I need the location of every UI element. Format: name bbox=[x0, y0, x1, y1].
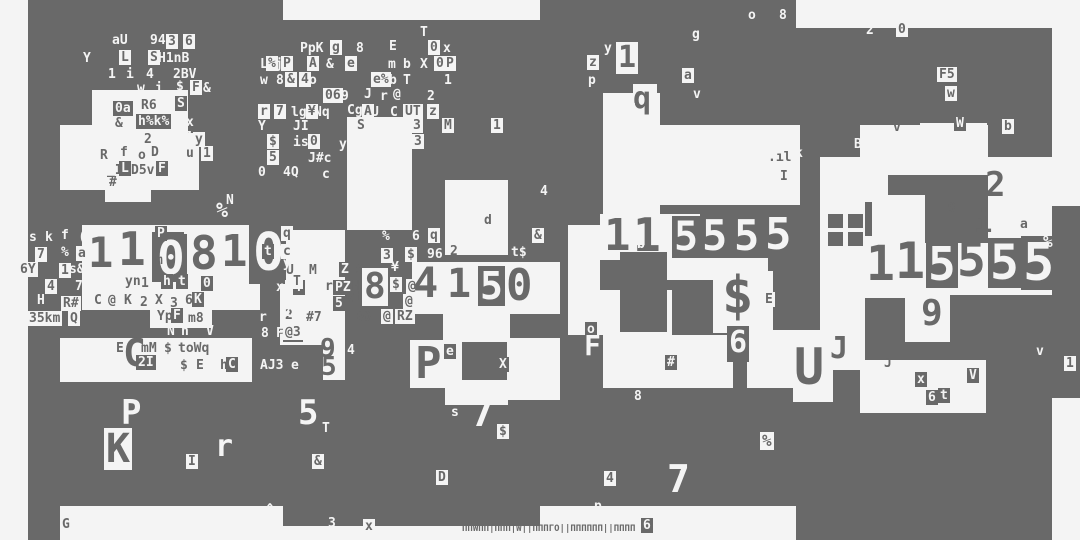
glyph: M bbox=[309, 264, 317, 277]
glyph: G bbox=[347, 152, 355, 165]
white-blob bbox=[507, 338, 560, 400]
glyph: 3 bbox=[381, 248, 393, 263]
white-blob bbox=[283, 0, 540, 20]
glyph: $ bbox=[180, 359, 188, 372]
glyph: a bbox=[76, 246, 88, 261]
glyph: x bbox=[186, 116, 194, 129]
glyph: 5 bbox=[926, 240, 958, 288]
glyph: ΠΠWΠΠ|ΠΠΠ|W||ΠΠΠΓΟ||ΠΠΠΠΠΠ||ΠΠΠΠ bbox=[462, 525, 635, 534]
glyph: 0a bbox=[113, 101, 133, 116]
gray-block bbox=[620, 252, 667, 332]
glyph: F bbox=[584, 332, 601, 360]
glyph: r bbox=[259, 311, 267, 324]
glyph: & bbox=[312, 454, 324, 469]
glyph: h%k% bbox=[136, 114, 171, 129]
glyph: 0 bbox=[201, 276, 213, 291]
glyph: d bbox=[484, 214, 492, 227]
glyph: 7 bbox=[75, 280, 83, 293]
glyph: 1 bbox=[201, 146, 213, 161]
glyph: K bbox=[124, 294, 132, 307]
glyph: P bbox=[444, 56, 456, 71]
glyph: T bbox=[322, 422, 330, 435]
glyph: W bbox=[954, 116, 966, 131]
glyph: f bbox=[61, 229, 69, 242]
glyph: 3 bbox=[166, 34, 178, 49]
glyph: 06 bbox=[323, 88, 343, 103]
glyph: F5 bbox=[937, 67, 957, 82]
glyph: F bbox=[156, 161, 168, 176]
glyph: @ bbox=[381, 309, 393, 324]
glyph: E bbox=[389, 40, 397, 53]
glyph: 6 bbox=[729, 328, 747, 358]
glyph: 1 bbox=[895, 236, 925, 286]
glyph: % bbox=[216, 200, 228, 220]
glyph: 5 bbox=[763, 212, 794, 258]
glyph: toWq bbox=[178, 342, 209, 355]
glyph: X bbox=[155, 294, 163, 307]
glyph: $ bbox=[390, 277, 402, 292]
glyph: 4 bbox=[540, 185, 548, 198]
glyph: 8 bbox=[362, 268, 388, 306]
glyph: 7 bbox=[184, 131, 192, 144]
glyph: $ bbox=[405, 247, 417, 262]
glyph: 96 bbox=[427, 248, 443, 261]
glyph: v bbox=[1036, 345, 1044, 358]
glyph: % bbox=[382, 230, 390, 243]
glyph: r bbox=[325, 280, 333, 293]
glyph: mM bbox=[141, 342, 157, 355]
glyph: # bbox=[109, 176, 117, 189]
glyph: f bbox=[120, 146, 128, 159]
glyph: 9 bbox=[921, 296, 943, 332]
glyph: 8 bbox=[276, 74, 284, 87]
glyph: D bbox=[151, 146, 159, 159]
glyph: 5 bbox=[988, 238, 1021, 288]
glyph: f bbox=[12, 231, 20, 244]
glyph: 4 bbox=[347, 344, 355, 357]
glyph: Y bbox=[83, 52, 91, 65]
white-blob bbox=[660, 125, 800, 205]
glyph: c bbox=[714, 306, 728, 330]
glyph: & bbox=[326, 58, 334, 71]
glyph: $ bbox=[164, 342, 172, 355]
glyph: V bbox=[206, 325, 214, 338]
glyph: 6 bbox=[926, 390, 938, 405]
glyph: J bbox=[830, 334, 848, 364]
glyph: C bbox=[94, 294, 102, 307]
glyph: w bbox=[945, 86, 957, 101]
glyph: t bbox=[938, 388, 950, 403]
glyph: t bbox=[176, 274, 188, 289]
glyph: 2 bbox=[140, 296, 148, 309]
glyph: s bbox=[451, 406, 459, 419]
glyph: s bbox=[29, 231, 37, 244]
glyph: J bbox=[884, 357, 892, 370]
glyph: y bbox=[193, 132, 205, 147]
glyph: 1 bbox=[444, 74, 452, 87]
white-blob bbox=[540, 506, 796, 540]
glyph: P bbox=[121, 396, 141, 430]
glyph: 6 bbox=[183, 34, 195, 49]
glyph: @ bbox=[393, 88, 401, 101]
glyph: b bbox=[403, 58, 411, 71]
glyph: J bbox=[364, 88, 372, 101]
glyph: # bbox=[665, 355, 677, 370]
glyph: R6 bbox=[141, 99, 157, 112]
glyph: 1 bbox=[604, 214, 631, 258]
glyph: 1 bbox=[108, 68, 116, 81]
glyph: 0 bbox=[896, 22, 908, 37]
glyph: 5 bbox=[267, 150, 279, 165]
glyph: 4Q bbox=[283, 166, 299, 179]
glyph: 5 bbox=[478, 266, 505, 306]
glyph: p bbox=[594, 500, 602, 513]
white-blob bbox=[443, 314, 510, 342]
glyph: 1 bbox=[118, 226, 146, 272]
glyph: z bbox=[587, 55, 599, 70]
glyph: I bbox=[186, 454, 198, 469]
glyph: q bbox=[281, 226, 293, 241]
glyph: t bbox=[262, 244, 274, 259]
glyph: x bbox=[363, 519, 375, 534]
glyph: yv bbox=[339, 138, 355, 151]
glyph: 4 bbox=[604, 471, 616, 486]
glyph: M bbox=[442, 118, 454, 133]
glyph: r bbox=[380, 90, 388, 103]
glyph: 1 bbox=[447, 264, 471, 304]
glyph: 8 bbox=[261, 327, 269, 340]
glyph: R bbox=[100, 149, 108, 162]
glyph: @3 bbox=[283, 325, 303, 340]
gray-block bbox=[848, 232, 863, 246]
glyph: b bbox=[389, 74, 397, 87]
gray-block bbox=[848, 214, 863, 228]
glyph: 5 bbox=[732, 214, 761, 258]
glyph: L bbox=[119, 161, 131, 176]
glyph: t$ bbox=[511, 246, 527, 259]
glyph: r bbox=[258, 104, 270, 119]
glyph: V bbox=[967, 368, 979, 383]
glyph: PpK bbox=[300, 42, 323, 55]
glyph: x bbox=[915, 372, 927, 387]
glyph: m bbox=[155, 254, 163, 267]
glyph: Z bbox=[339, 262, 351, 277]
glyph: g bbox=[330, 40, 342, 55]
glyph: b bbox=[637, 238, 645, 251]
glyph: 1 bbox=[141, 277, 149, 290]
glyph: h bbox=[161, 274, 173, 289]
glyph: 2 bbox=[866, 24, 874, 37]
glyph: .ıl bbox=[768, 151, 791, 164]
glyph: UT bbox=[403, 104, 423, 119]
glyph: y bbox=[283, 257, 291, 270]
gray-block bbox=[828, 214, 843, 228]
glyph: E bbox=[196, 359, 204, 372]
glyph: L bbox=[119, 50, 131, 65]
glyph: S bbox=[175, 96, 187, 111]
glyph: 3 bbox=[411, 118, 423, 133]
glyph: 1 bbox=[88, 232, 113, 274]
glyph: 1 bbox=[1064, 356, 1076, 371]
glyph: 8 bbox=[356, 42, 364, 55]
glyph: 0 bbox=[258, 166, 266, 179]
glyph: % bbox=[760, 432, 774, 450]
glyph: 9 bbox=[948, 202, 956, 215]
glyph: BQ bbox=[355, 311, 371, 324]
white-blob bbox=[60, 506, 283, 540]
glyph: is bbox=[293, 136, 309, 149]
glyph: e bbox=[291, 359, 299, 372]
glyph: % bbox=[1043, 234, 1053, 250]
glyph: s& bbox=[69, 263, 85, 276]
glyph: i bbox=[155, 82, 163, 95]
glyph: T bbox=[420, 26, 428, 39]
glyph: @ bbox=[108, 294, 116, 307]
glyph: Cg bbox=[347, 104, 363, 117]
glyph: A bbox=[307, 56, 319, 71]
glyph: X bbox=[497, 357, 509, 372]
glyph: 7 bbox=[628, 103, 636, 116]
glyph: Q bbox=[68, 311, 80, 326]
glyph: Y bbox=[258, 120, 266, 133]
glyph: 7 bbox=[35, 247, 47, 262]
glyph: r bbox=[215, 432, 233, 462]
glyph: 7 bbox=[471, 394, 494, 432]
glyph: 6Y bbox=[18, 262, 38, 277]
glyph: X bbox=[420, 58, 428, 71]
glyph: n bbox=[181, 325, 189, 338]
glyph: 1 bbox=[221, 230, 248, 274]
glyph: 5 bbox=[672, 216, 700, 258]
glyph: 6 bbox=[412, 230, 420, 243]
glyph: 8 bbox=[779, 9, 787, 22]
glyph: 1 bbox=[866, 240, 895, 288]
glyph: B bbox=[854, 138, 862, 151]
glyph: D5v bbox=[131, 164, 154, 177]
glyph: e bbox=[345, 56, 357, 71]
glyph: U bbox=[794, 342, 824, 392]
glyph: . bbox=[677, 463, 685, 476]
glyph: 1 bbox=[616, 42, 638, 74]
glyph: ^ bbox=[266, 503, 274, 516]
glyph: 7 bbox=[274, 104, 286, 119]
glyph: P bbox=[415, 342, 442, 386]
glyph: T bbox=[291, 274, 303, 289]
glyph: dz bbox=[386, 122, 402, 135]
glyph: m8 bbox=[186, 311, 206, 326]
glyph: 2 bbox=[283, 306, 291, 319]
glyph: $ bbox=[497, 424, 509, 439]
glyph: Nq bbox=[314, 106, 330, 119]
glyph: k bbox=[795, 147, 803, 160]
ascii-art-canvas: aU9436YLSH1nB1i42BVwi$F&0aR6S&h%k%x27yRf… bbox=[0, 0, 1080, 540]
glyph: E bbox=[763, 292, 775, 307]
glyph: 9 bbox=[341, 90, 349, 103]
glyph: 1 bbox=[491, 118, 503, 133]
glyph: 0 bbox=[506, 264, 533, 308]
gray-block bbox=[828, 232, 843, 246]
glyph: K bbox=[192, 292, 204, 307]
glyph: N bbox=[167, 325, 175, 338]
glyph: a bbox=[682, 68, 694, 83]
glyph: AJ3 bbox=[260, 359, 283, 372]
glyph: b bbox=[1002, 119, 1014, 134]
glyph: g bbox=[692, 28, 700, 41]
glyph: o bbox=[748, 9, 756, 22]
glyph: H1nB bbox=[158, 52, 189, 65]
glyph: m bbox=[674, 260, 682, 273]
glyph: 4 bbox=[146, 68, 154, 81]
glyph: 5 bbox=[700, 214, 729, 258]
glyph: q bbox=[428, 228, 440, 243]
white-blob bbox=[796, 0, 1052, 28]
white-blob bbox=[1052, 0, 1080, 206]
glyph: yn bbox=[125, 275, 141, 288]
glyph: F bbox=[171, 308, 183, 323]
glyph: C bbox=[226, 357, 238, 372]
glyph: 5 bbox=[321, 354, 337, 380]
glyph: % bbox=[61, 246, 69, 259]
glyph: 5 bbox=[298, 396, 318, 430]
glyph: 2 bbox=[427, 90, 435, 103]
glyph: H bbox=[37, 294, 45, 307]
glyph: p bbox=[588, 74, 596, 87]
glyph: 35km bbox=[27, 311, 62, 326]
glyph: o bbox=[309, 74, 317, 87]
glyph: F bbox=[190, 80, 202, 95]
glyph: P bbox=[155, 226, 167, 241]
glyph: k bbox=[45, 231, 53, 244]
glyph: & bbox=[203, 82, 211, 95]
glyph: D bbox=[436, 470, 448, 485]
glyph: i bbox=[974, 208, 992, 238]
glyph: 4 bbox=[45, 279, 57, 294]
glyph: JI bbox=[293, 120, 309, 133]
glyph: o bbox=[138, 149, 146, 162]
glyph: C bbox=[390, 106, 398, 119]
glyph: u bbox=[184, 146, 196, 161]
glyph: 0 bbox=[428, 40, 440, 55]
glyph: v bbox=[893, 121, 901, 134]
glyph: lg bbox=[291, 106, 307, 119]
glyph: 2 bbox=[450, 245, 458, 258]
glyph: y bbox=[604, 42, 612, 55]
glyph: 5 bbox=[957, 236, 986, 284]
glyph: w bbox=[137, 82, 145, 95]
glyph: i bbox=[126, 68, 134, 81]
glyph: & bbox=[532, 228, 544, 243]
glyph: J#c bbox=[308, 152, 331, 165]
glyph: 2 bbox=[985, 168, 1005, 202]
glyph: e bbox=[444, 344, 456, 359]
glyph: e% bbox=[371, 72, 391, 87]
glyph: T bbox=[403, 74, 411, 87]
glyph: 5 bbox=[333, 296, 345, 311]
glyph: z bbox=[427, 104, 439, 119]
glyph: 2I bbox=[136, 355, 156, 370]
glyph: P bbox=[281, 56, 293, 71]
glyph: U bbox=[371, 106, 379, 119]
glyph: c bbox=[322, 168, 330, 181]
glyph: & bbox=[285, 72, 297, 87]
glyph: 94 bbox=[150, 34, 166, 47]
glyph: v bbox=[693, 88, 701, 101]
glyph: R# bbox=[61, 296, 81, 311]
white-blob bbox=[1052, 398, 1080, 540]
glyph: 8 bbox=[634, 390, 642, 403]
glyph: a bbox=[1020, 218, 1028, 231]
glyph: 7 bbox=[21, 278, 29, 291]
glyph: $ bbox=[267, 134, 279, 149]
glyph: S bbox=[355, 118, 367, 133]
white-blob bbox=[347, 117, 412, 230]
glyph: aU bbox=[112, 34, 128, 47]
glyph: & bbox=[115, 117, 123, 130]
glyph: $ bbox=[176, 80, 184, 93]
glyph: G bbox=[60, 517, 72, 532]
glyph: x bbox=[276, 281, 284, 294]
glyph: 4 bbox=[413, 262, 438, 304]
glyph: 6 bbox=[641, 518, 653, 533]
glyph: 0 bbox=[308, 134, 320, 149]
glyph: RZ bbox=[395, 309, 415, 324]
glyph: #7 bbox=[306, 311, 322, 324]
glyph: I bbox=[780, 170, 788, 183]
glyph: m bbox=[388, 58, 396, 71]
glyph: x bbox=[443, 42, 451, 55]
glyph: Wi bbox=[346, 292, 362, 305]
glyph: 8 bbox=[190, 230, 218, 276]
glyph: 3 bbox=[412, 134, 424, 149]
glyph: K bbox=[104, 428, 132, 470]
glyph: 3 bbox=[328, 517, 336, 530]
glyph: w bbox=[260, 74, 268, 87]
